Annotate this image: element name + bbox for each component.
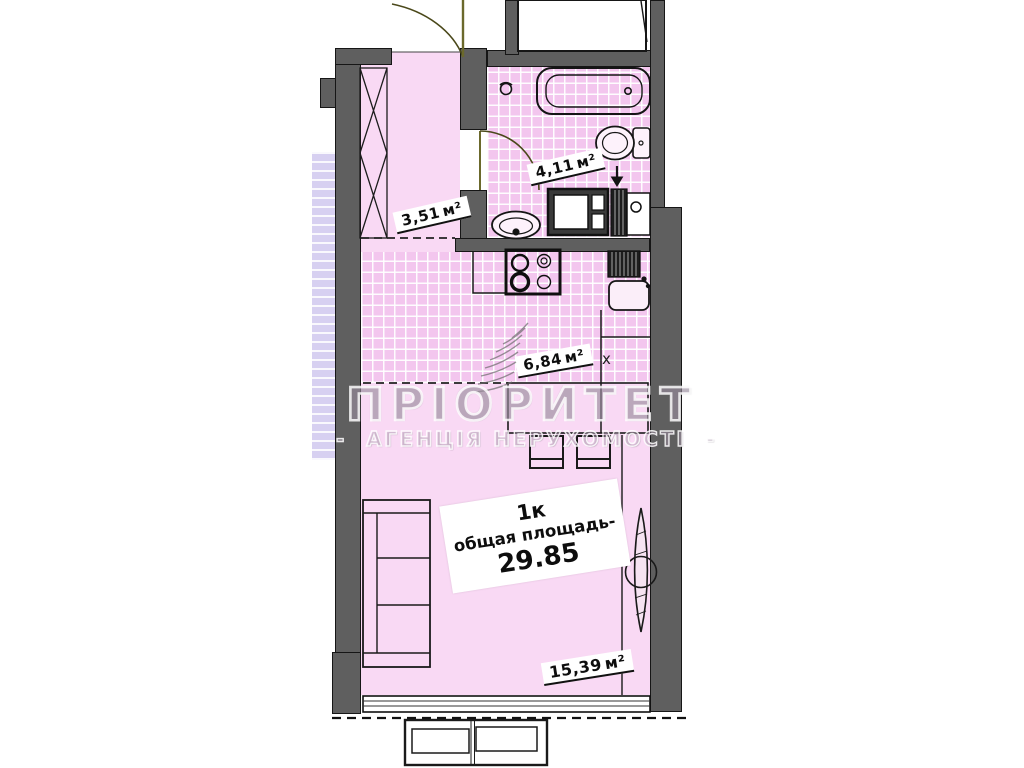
hallway-area-unit: м² — [441, 198, 464, 220]
bathroom-kitchen-wall — [455, 238, 650, 252]
left-exterior-wall — [335, 48, 361, 712]
kitchen-area-unit: м² — [563, 346, 586, 367]
bathroom-door-opening — [460, 130, 487, 190]
top-wall-left — [335, 48, 392, 65]
right-exterior-wall-lower — [650, 207, 682, 712]
neighbor-apartment-strip — [312, 152, 337, 460]
hall-bathroom-wall-upper — [460, 48, 487, 130]
balcony — [405, 720, 547, 765]
watermark-right-dash: - — [706, 427, 717, 451]
apartment-floor-plan: 3,51м² 4,11м² 6,84м² 15,39м² 1к общая пл… — [330, 0, 690, 768]
shaft-left-wall — [505, 0, 519, 55]
entrance-threshold-floor — [392, 52, 463, 65]
kitchen-area-value: 6,84 — [522, 350, 564, 375]
entrance-door — [392, 0, 463, 57]
balcony-window — [332, 696, 688, 718]
left-wall-footing — [332, 652, 361, 714]
service-shaft — [518, 0, 647, 51]
bathroom-floor — [487, 67, 650, 238]
bathroom-area-unit: м² — [575, 150, 598, 172]
living-room-area-unit: м² — [603, 651, 627, 673]
floor-plan-canvas: 3,51м² 4,11м² 6,84м² 15,39м² 1к общая пл… — [0, 0, 1024, 768]
right-exterior-wall-upper — [650, 0, 665, 209]
fridge-spot-marker: x — [602, 350, 611, 368]
